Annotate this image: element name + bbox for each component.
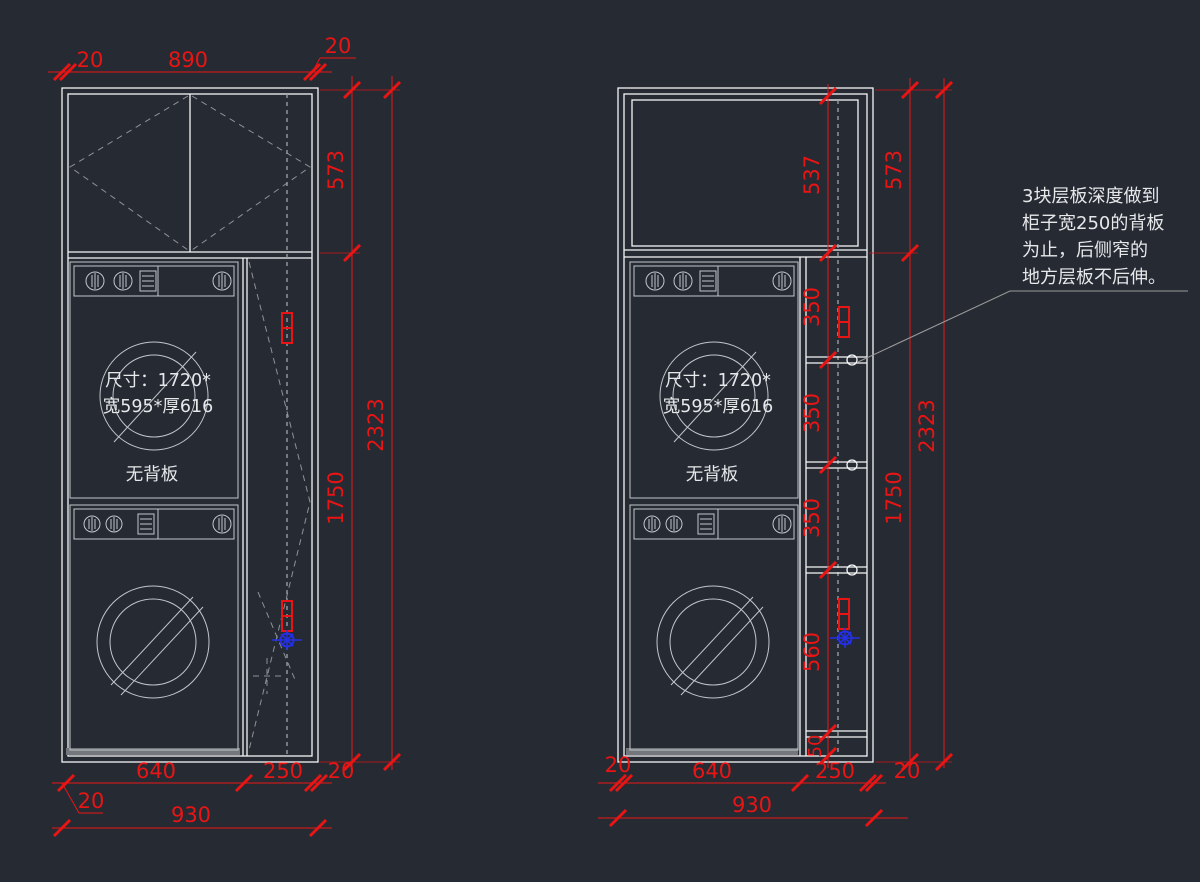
knob-icon [646, 272, 664, 290]
hinge-icon [839, 599, 849, 629]
dim-label: 640 [692, 759, 732, 783]
machine-size-label-line2: 宽595*厚616 [103, 397, 214, 417]
knob-icon [86, 272, 104, 290]
dim-label: 20 [605, 753, 632, 777]
knob-icon [666, 516, 682, 532]
dispenser-icon [138, 514, 154, 534]
left-elevation-view[interactable]: 尺寸：1720* 宽595*厚616 无背板 20 890 [48, 34, 400, 836]
dim-label: 640 [136, 759, 176, 783]
dryer-unit [70, 505, 238, 750]
dim-label: 537 [800, 155, 824, 195]
knob-icon [773, 272, 791, 290]
dim-label: 1750 [882, 471, 906, 524]
dim-label: 20 [894, 759, 921, 783]
note-line4: 地方层板不后伸。 [1022, 267, 1166, 288]
dryer-door-window [97, 586, 209, 698]
hinge-icon [282, 601, 292, 631]
dim-label: 20 [328, 759, 355, 783]
note-line3: 为止，后侧窄的 [1022, 240, 1148, 261]
dim-label: 20 [325, 34, 352, 58]
dim-label: 1750 [324, 471, 348, 524]
dispenser-icon [140, 271, 156, 291]
dim-label: 890 [168, 48, 208, 72]
note-line1: 3块层板深度做到 [1022, 186, 1159, 207]
plinth-board [66, 748, 240, 755]
dim-label: 930 [732, 793, 772, 817]
dim-label: 573 [882, 150, 906, 190]
dim-label: 20 [77, 48, 104, 72]
machine-size-label-line1: 尺寸：1720* [665, 371, 771, 391]
dim-label: 2323 [915, 399, 939, 452]
dim-label: 20 [78, 789, 105, 813]
dim-label: 573 [324, 150, 348, 190]
dim-label: 2323 [364, 398, 388, 451]
knob-icon [674, 272, 692, 290]
dispenser-icon [700, 271, 716, 291]
knob-icon [773, 515, 791, 533]
dim-label: 930 [171, 803, 211, 827]
no-back-panel-label: 无背板 [126, 465, 179, 485]
dim-label: 560 [800, 632, 824, 672]
dim-label: 350 [800, 498, 824, 538]
washer-unit: 尺寸：1720* 宽595*厚616 无背板 [70, 262, 238, 498]
dim-label: 350 [800, 393, 824, 433]
note-line2: 柜子宽250的背板 [1022, 213, 1164, 234]
right-view-dimensions: 537 350 350 350 560 50 573 1750 2323 [598, 78, 952, 826]
knob-icon [106, 516, 122, 532]
dim-label: 350 [800, 287, 824, 327]
washer-unit: 尺寸：1720* 宽595*厚616 无背板 [630, 262, 798, 498]
machine-size-label-line1: 尺寸：1720* [105, 371, 211, 391]
right-elevation-view[interactable]: 尺寸：1720* 宽595*厚616 无背板 [598, 78, 952, 826]
dryer-unit [630, 505, 798, 750]
insertion-point-marker [272, 630, 302, 650]
knob-icon [114, 272, 132, 290]
hinge-icon [282, 313, 292, 343]
washer-door-window [660, 342, 768, 450]
insertion-point-marker [830, 628, 860, 648]
note-leader-line [858, 291, 1188, 362]
plinth-board [626, 748, 798, 755]
dim-label: 250 [815, 759, 855, 783]
dispenser-icon [698, 514, 714, 534]
knob-icon [84, 516, 100, 532]
no-back-panel-label: 无背板 [686, 465, 739, 485]
cad-viewport[interactable]: 尺寸：1720* 宽595*厚616 无背板 20 890 [0, 0, 1200, 882]
dim-label: 50 [805, 735, 826, 758]
cad-canvas[interactable]: 尺寸：1720* 宽595*厚616 无背板 20 890 [0, 0, 1200, 882]
machine-size-label-line2: 宽595*厚616 [663, 397, 774, 417]
shelf-note-annotation: 3块层板深度做到 柜子宽250的背板 为止，后侧窄的 地方层板不后伸。 [858, 186, 1188, 362]
hinge-icon [839, 307, 849, 337]
knob-icon [644, 516, 660, 532]
dryer-door-window [657, 586, 769, 698]
knob-icon [213, 272, 231, 290]
knob-icon [213, 515, 231, 533]
washer-door-window [100, 342, 208, 450]
cabinet-outline [618, 88, 873, 762]
dim-label: 250 [263, 759, 303, 783]
left-view-dimensions: 20 890 20 573 1750 2323 640 [48, 34, 400, 836]
